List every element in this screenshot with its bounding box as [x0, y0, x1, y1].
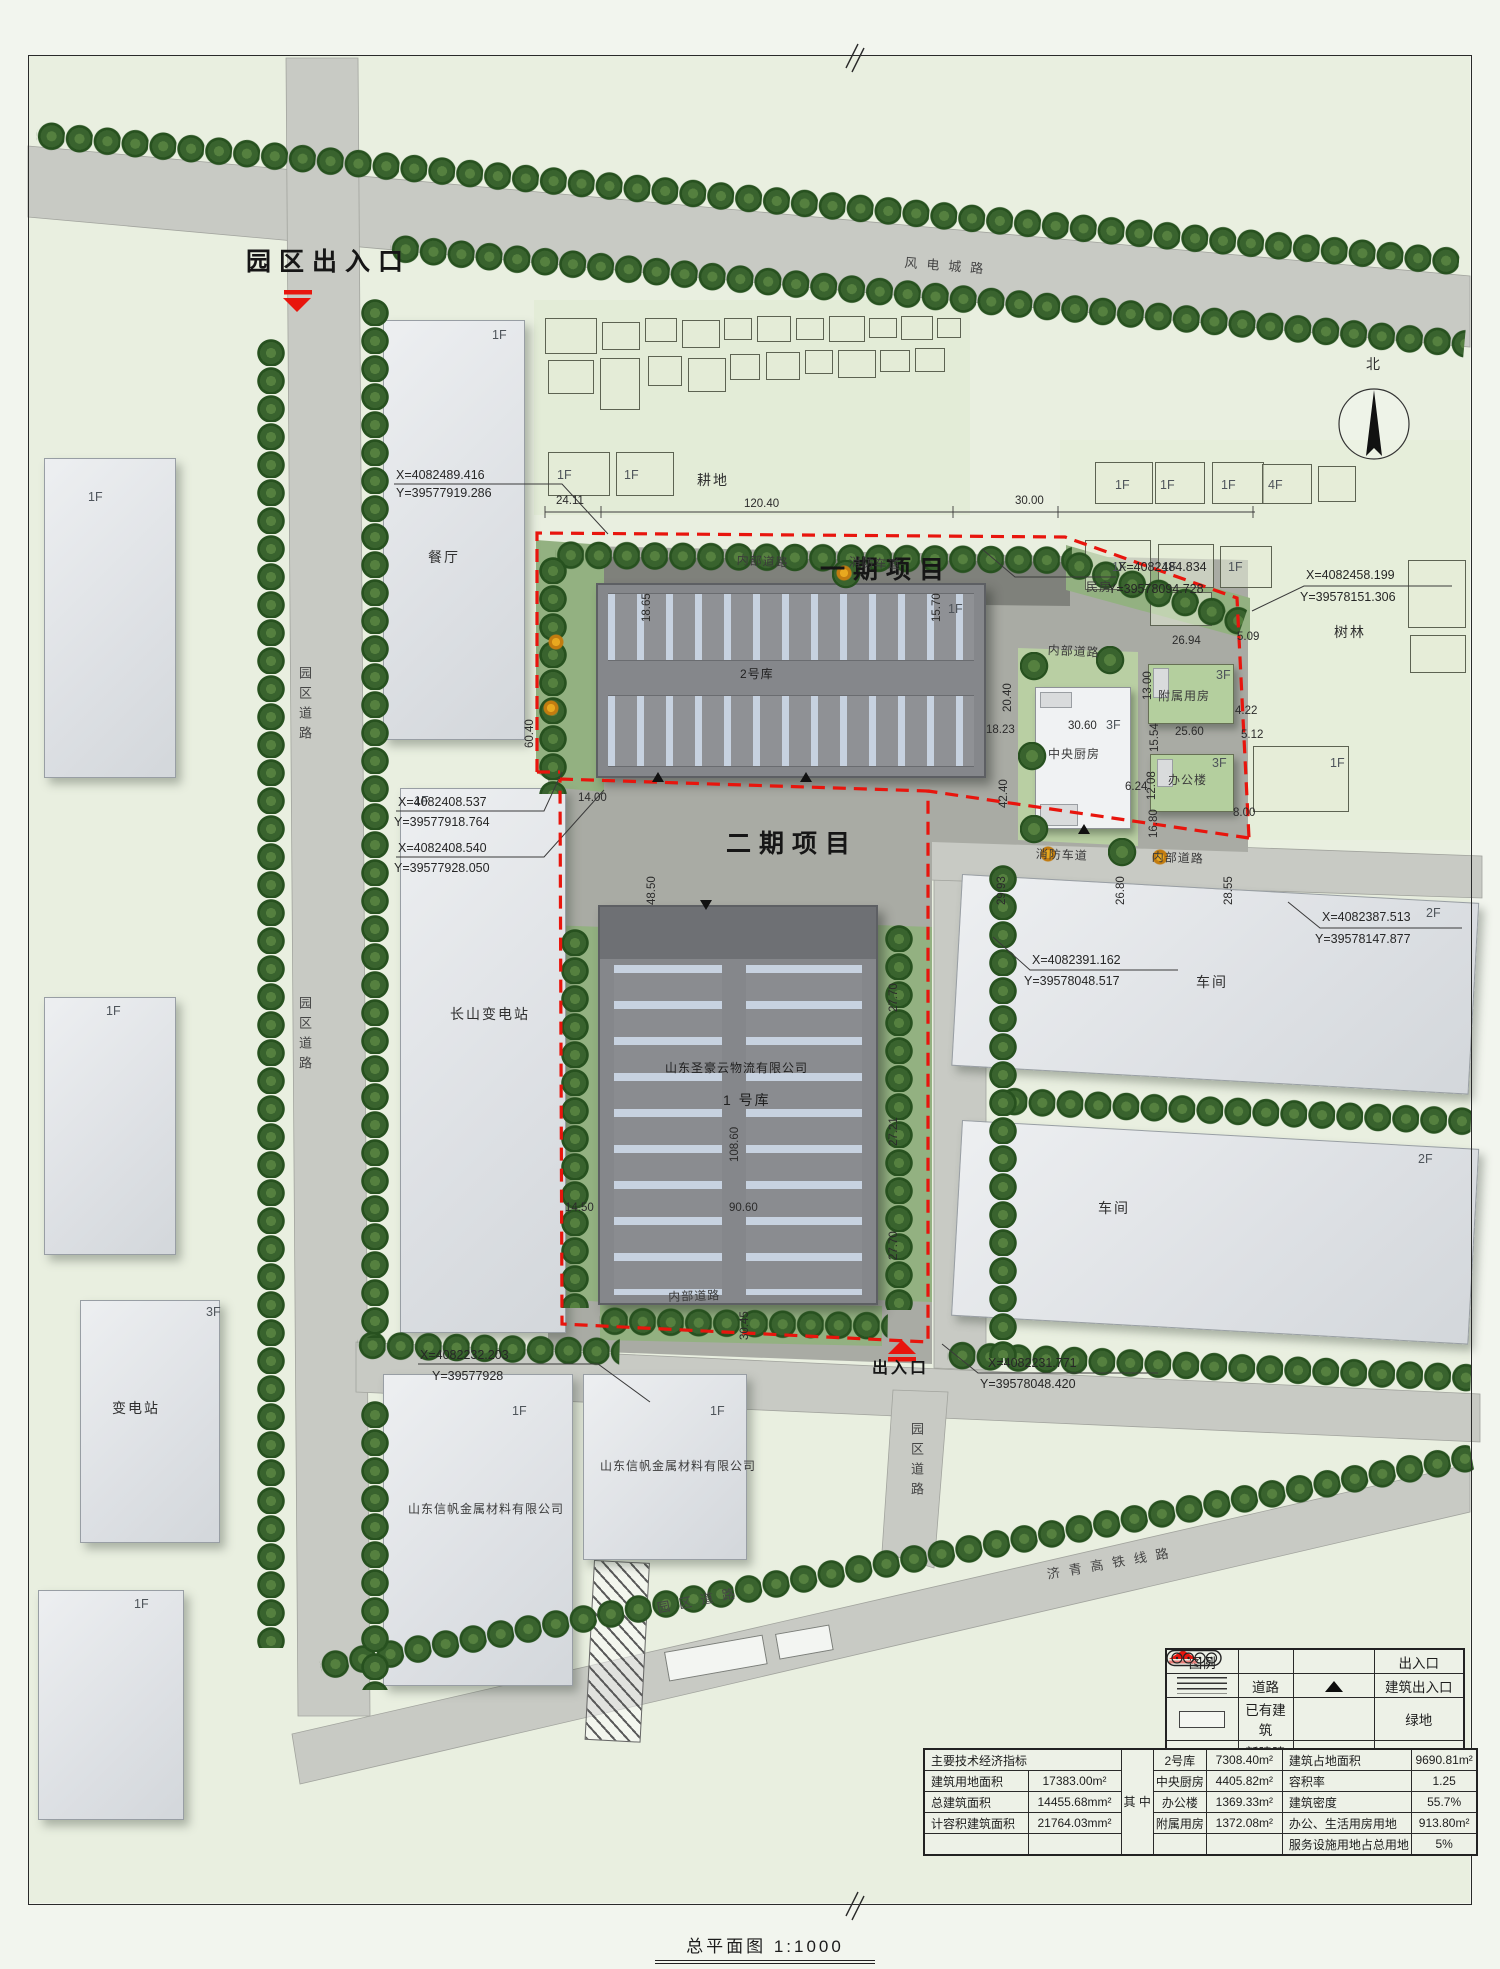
- village-house: [869, 318, 897, 338]
- entrance-arrow-icon: [1293, 1649, 1374, 1674]
- tree: [1020, 815, 1050, 845]
- econ-cell: 计容积建筑面积: [924, 1813, 1028, 1834]
- village-house: [548, 452, 610, 496]
- econ-cell: [1153, 1834, 1206, 1856]
- substation-building: [80, 1300, 220, 1543]
- roof-unit: [1157, 759, 1173, 787]
- roof-unit: [1040, 692, 1072, 708]
- legend-existing-label: 已有建筑: [1238, 1698, 1293, 1741]
- village-house: [1095, 462, 1153, 504]
- village-house: [1262, 464, 1312, 504]
- warehouse1-building: [598, 905, 878, 1305]
- village-house: [688, 358, 726, 392]
- flower-shrub: [548, 634, 564, 650]
- econ-cell: 17383.00m²: [1028, 1771, 1121, 1792]
- econ-cell: 4405.82m²: [1206, 1771, 1282, 1792]
- econ-cell: 913.80m²: [1411, 1813, 1477, 1834]
- econ-cell: 建筑密度: [1282, 1792, 1411, 1813]
- village-house: [600, 358, 640, 410]
- village-house: [616, 452, 674, 496]
- tree-column: [538, 556, 568, 794]
- econ-cell: 办公、生活用房用地: [1282, 1813, 1411, 1834]
- tree: [1018, 742, 1048, 772]
- parking-strip: [585, 1560, 650, 1743]
- skylight-band: [746, 965, 862, 1295]
- flower-shrub: [1152, 849, 1168, 865]
- econ-cell: 1.25: [1411, 1771, 1477, 1792]
- drawing-title: 总平面图 1:1000: [655, 1932, 875, 1964]
- village-house: [1220, 546, 1272, 588]
- tree-column: [884, 924, 914, 1310]
- tree-column: [256, 338, 286, 1648]
- village-house: [829, 316, 865, 342]
- office-building: [1150, 754, 1234, 812]
- village-house: [1212, 462, 1264, 504]
- workshop-building: [951, 874, 1479, 1095]
- tree-column: [560, 928, 590, 1308]
- econ-cell: 7308.40m²: [1206, 1749, 1282, 1771]
- village-house: [796, 318, 824, 340]
- road-symbol-icon: [1166, 1674, 1238, 1698]
- site-plan-canvas: 园区出入口风电城路一期项目二期项目内部道路消防车道内部道路消防车道内部道路内部道…: [0, 0, 1500, 1969]
- canteen-building: [383, 320, 525, 740]
- tree: [1108, 838, 1138, 868]
- skylight-band: [614, 965, 722, 1295]
- roof-ridge: [600, 907, 876, 959]
- skylight-band: [608, 593, 974, 661]
- econ-cell: 容积率: [1282, 1771, 1411, 1792]
- village-house: [682, 320, 720, 348]
- village-house: [1155, 462, 1205, 504]
- village-house: [1408, 560, 1466, 628]
- company-building: [583, 1374, 747, 1560]
- village-house: [645, 318, 677, 342]
- econ-cell: 5%: [1411, 1834, 1477, 1856]
- village-house: [937, 318, 961, 338]
- workshop-building: [951, 1120, 1479, 1345]
- tree-column: [360, 1400, 390, 1690]
- econ-cell: 55.7%: [1411, 1792, 1477, 1813]
- econ-cell: [1206, 1834, 1282, 1856]
- existing-building: [44, 458, 176, 778]
- village-house: [730, 354, 760, 380]
- roof-unit: [1153, 668, 1169, 698]
- flower-shrub: [836, 565, 852, 581]
- legend-entrance-label: 出入口: [1374, 1649, 1464, 1674]
- village-house: [548, 360, 594, 394]
- econ-cell: [1028, 1834, 1121, 1856]
- legend-bldg-entrance-label: 建筑出入口: [1374, 1674, 1464, 1698]
- village-house: [805, 350, 833, 374]
- village-house: [1410, 635, 1466, 673]
- existing-building: [38, 1590, 184, 1820]
- econ-cell: [924, 1834, 1028, 1856]
- tree-row: [599, 1306, 887, 1341]
- tree-row: [556, 540, 1072, 575]
- econ-cell: 9690.81m²: [1411, 1749, 1477, 1771]
- village-house: [1318, 466, 1356, 502]
- village-house: [602, 322, 640, 350]
- tree: [1096, 646, 1126, 676]
- existing-building: [44, 997, 176, 1255]
- building-entrance-icon: [1293, 1674, 1374, 1698]
- road-park-west: [286, 58, 370, 1716]
- econ-cell: 1369.33m²: [1206, 1792, 1282, 1813]
- village-house: [901, 316, 933, 340]
- village-house: [766, 352, 800, 380]
- auxiliary-building: [1148, 664, 1234, 724]
- village-house: [648, 356, 682, 386]
- econ-cell: 总建筑面积: [924, 1792, 1028, 1813]
- village-house: [880, 350, 910, 372]
- flower-shrub: [543, 700, 559, 716]
- tree: [1020, 652, 1050, 682]
- econ-among-cell: 其 中: [1121, 1749, 1153, 1855]
- econ-cell: 1372.08m²: [1206, 1813, 1282, 1834]
- village-house: [545, 318, 597, 354]
- existing-building-icon: [1166, 1698, 1238, 1741]
- warehouse2-building: [596, 583, 986, 778]
- tree-column: [988, 864, 1018, 1358]
- central-kitchen-building: [1035, 687, 1131, 829]
- legend-empty-cell: [1238, 1649, 1293, 1674]
- econ-cell: 14455.68mm²: [1028, 1792, 1121, 1813]
- econ-cell: 建筑占地面积: [1282, 1749, 1411, 1771]
- econ-cell: 2号库: [1153, 1749, 1206, 1771]
- village-house: [1253, 746, 1349, 812]
- village-house: [724, 318, 752, 340]
- green-space-icon: [1293, 1698, 1374, 1741]
- legend-green-label: 绿地: [1374, 1698, 1464, 1741]
- econ-cell: 服务设施用地占总用地: [1282, 1834, 1411, 1856]
- village-house: [757, 316, 791, 342]
- tree-column: [360, 298, 390, 1338]
- econ-cell: 附属用房: [1153, 1813, 1206, 1834]
- legend-road-label: 道路: [1238, 1674, 1293, 1698]
- econ-cell: 办公楼: [1153, 1792, 1206, 1813]
- flower-shrub: [1040, 846, 1056, 862]
- village-house: [915, 348, 945, 372]
- econ-header: 主要技术经济指标: [924, 1749, 1121, 1771]
- village-house: [838, 350, 876, 378]
- econ-cell: 建筑用地面积: [924, 1771, 1028, 1792]
- economic-indicators-table: 主要技术经济指标 其 中 2号库 7308.40m² 建筑占地面积 9690.8…: [923, 1748, 1478, 1856]
- econ-cell: 中央厨房: [1153, 1771, 1206, 1792]
- skylight-band: [608, 695, 974, 767]
- econ-cell: 21764.03mm²: [1028, 1813, 1121, 1834]
- changshan-substation-building: [400, 788, 566, 1333]
